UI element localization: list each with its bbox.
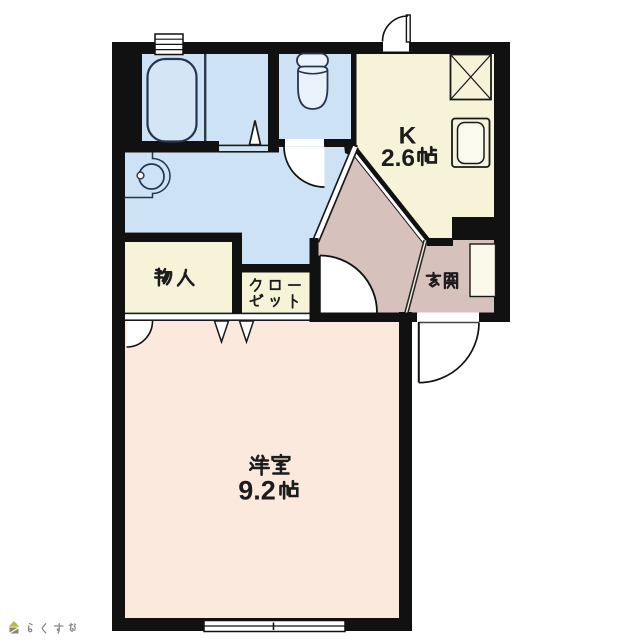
svg-text:9.2: 9.2 [238, 476, 276, 506]
svg-text:2.6: 2.6 [381, 145, 415, 172]
